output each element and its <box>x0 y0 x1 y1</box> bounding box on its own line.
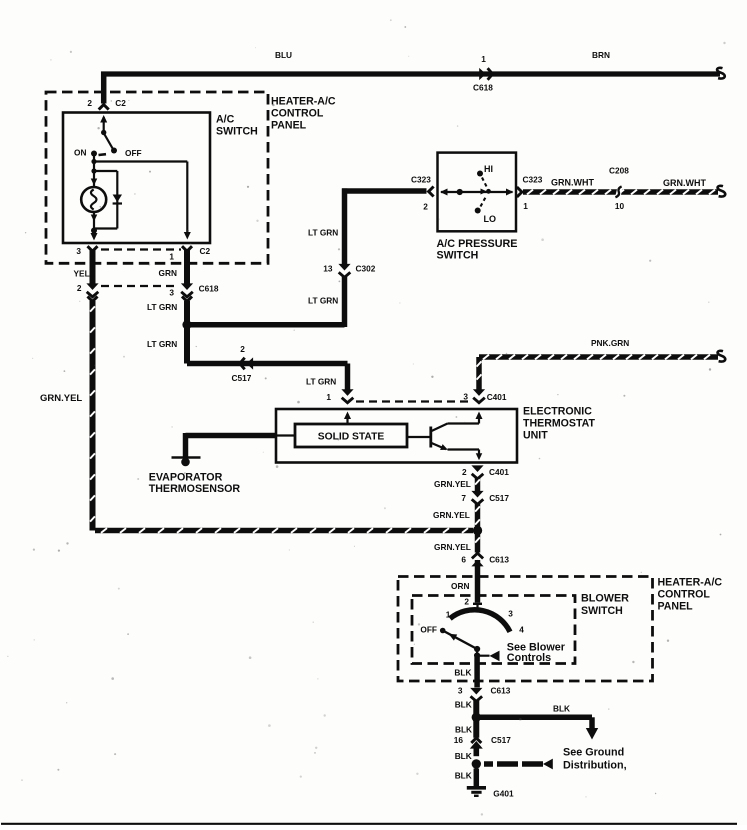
svg-text:1: 1 <box>169 252 174 262</box>
svg-text:1: 1 <box>446 610 451 620</box>
svg-text:HI: HI <box>484 164 493 174</box>
svg-text:PANEL: PANEL <box>271 120 307 132</box>
svg-text:LT GRN: LT GRN <box>308 228 338 238</box>
svg-text:PANEL: PANEL <box>658 600 694 612</box>
svg-text:C401: C401 <box>489 467 509 477</box>
svg-text:CONTROL: CONTROL <box>271 108 324 120</box>
svg-text:1: 1 <box>481 54 486 64</box>
svg-text:C618: C618 <box>199 283 219 293</box>
svg-text:13: 13 <box>323 264 333 274</box>
svg-text:THERMOSENSOR: THERMOSENSOR <box>149 483 241 495</box>
svg-text:2: 2 <box>423 202 428 212</box>
svg-text:3: 3 <box>169 288 174 298</box>
svg-text:3: 3 <box>458 685 463 695</box>
svg-text:C302: C302 <box>356 264 376 274</box>
svg-text:3: 3 <box>508 608 513 618</box>
svg-text:2: 2 <box>240 344 245 354</box>
svg-text:THERMOSTAT: THERMOSTAT <box>523 418 596 430</box>
svg-text:BRN: BRN <box>592 50 610 60</box>
svg-text:LO: LO <box>484 214 497 224</box>
svg-text:SWITCH: SWITCH <box>581 605 623 617</box>
svg-text:GRN.YEL: GRN.YEL <box>434 479 471 489</box>
svg-text:C517: C517 <box>489 493 509 503</box>
svg-text:3: 3 <box>76 246 81 256</box>
svg-text:BLK: BLK <box>455 725 472 735</box>
svg-text:GRN.WHT: GRN.WHT <box>551 178 594 188</box>
svg-text:C613: C613 <box>491 685 511 695</box>
svg-text:C517: C517 <box>491 735 511 745</box>
svg-text:PNK.GRN: PNK.GRN <box>591 338 629 348</box>
svg-text:C2: C2 <box>200 246 211 256</box>
svg-text:GRN: GRN <box>159 268 177 278</box>
svg-text:OFF: OFF <box>125 148 142 158</box>
svg-text:A/C PRESSURE: A/C PRESSURE <box>437 238 518 250</box>
svg-text:1: 1 <box>523 201 528 211</box>
svg-text:2: 2 <box>462 467 467 477</box>
svg-text:BLU: BLU <box>275 50 292 60</box>
svg-text:1: 1 <box>326 392 331 402</box>
svg-text:HEATER-A/C: HEATER-A/C <box>658 576 723 588</box>
svg-text:G401: G401 <box>493 789 514 799</box>
svg-text:ON: ON <box>74 148 86 158</box>
svg-text:BLK: BLK <box>455 751 472 761</box>
svg-text:Controls: Controls <box>507 652 551 664</box>
svg-text:BLK: BLK <box>455 771 472 781</box>
svg-text:BLK: BLK <box>553 704 570 714</box>
svg-text:4: 4 <box>519 625 524 635</box>
svg-text:Distribution,: Distribution, <box>563 759 627 771</box>
svg-text:BLK: BLK <box>454 667 471 677</box>
svg-text:C618: C618 <box>473 83 493 93</box>
svg-text:LT GRN: LT GRN <box>147 339 177 349</box>
svg-text:LT GRN: LT GRN <box>308 295 338 305</box>
svg-text:2: 2 <box>77 283 82 293</box>
svg-text:GRN.YEL: GRN.YEL <box>40 393 82 404</box>
svg-text:C2: C2 <box>115 98 126 108</box>
svg-text:C323: C323 <box>411 175 431 185</box>
svg-text:6: 6 <box>461 555 466 565</box>
svg-text:SOLID STATE: SOLID STATE <box>318 432 385 443</box>
svg-text:GRN.WHT: GRN.WHT <box>663 178 706 188</box>
svg-text:BLOWER: BLOWER <box>581 592 629 604</box>
svg-text:LT GRN: LT GRN <box>147 302 177 312</box>
svg-text:GRN.YEL: GRN.YEL <box>433 510 470 520</box>
svg-text:UNIT: UNIT <box>523 430 548 442</box>
svg-text:OFF: OFF <box>420 625 437 635</box>
svg-text:LT GRN: LT GRN <box>306 377 336 387</box>
svg-text:SWITCH: SWITCH <box>216 126 258 138</box>
svg-text:See Ground: See Ground <box>563 746 624 758</box>
svg-text:SWITCH: SWITCH <box>437 249 479 261</box>
svg-text:3: 3 <box>463 392 468 402</box>
svg-text:C401: C401 <box>487 392 507 402</box>
svg-text:10: 10 <box>615 201 625 211</box>
svg-text:16: 16 <box>454 735 464 745</box>
svg-text:BLK: BLK <box>455 700 472 710</box>
svg-text:CONTROL: CONTROL <box>658 588 711 600</box>
svg-text:C517: C517 <box>232 373 252 383</box>
svg-text:ORN: ORN <box>451 581 469 591</box>
svg-text:YEL: YEL <box>74 269 90 279</box>
svg-text:C208: C208 <box>609 166 629 176</box>
svg-text:C613: C613 <box>489 555 509 565</box>
svg-text:2: 2 <box>87 98 92 108</box>
svg-text:HEATER-A/C: HEATER-A/C <box>271 96 336 108</box>
svg-text:ELECTRONIC: ELECTRONIC <box>523 406 592 418</box>
svg-text:A/C: A/C <box>216 114 235 126</box>
svg-text:2: 2 <box>464 597 469 607</box>
svg-text:GRN.YEL: GRN.YEL <box>434 542 471 552</box>
svg-text:C323: C323 <box>523 175 543 185</box>
svg-text:7: 7 <box>461 493 466 503</box>
